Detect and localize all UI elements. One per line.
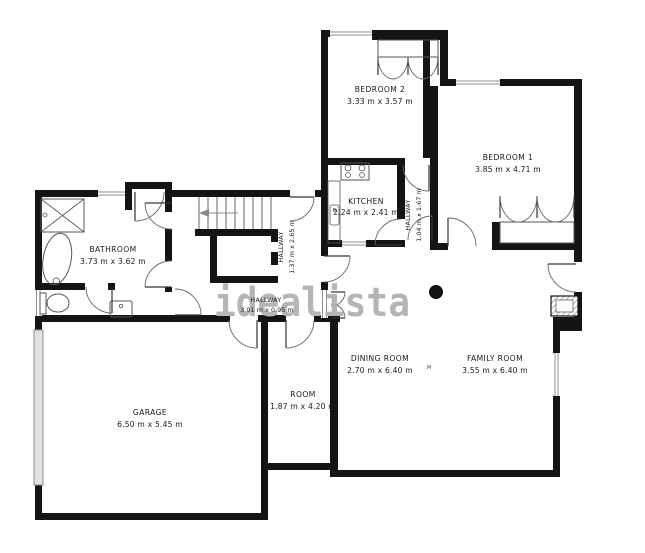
door-bathroom-b — [145, 261, 171, 287]
window-bedroom2-top — [330, 30, 372, 37]
svg-text:3.73 m x 3.62 m: 3.73 m x 3.62 m — [80, 257, 146, 266]
bedroom1-closet — [500, 196, 574, 243]
svg-text:1.37 m x 2.65 m: 1.37 m x 2.65 m — [289, 220, 296, 274]
label-bedroom2: BEDROOM 2 3.33 m x 3.57 m — [347, 85, 413, 106]
stair-direction-arrow-icon — [199, 209, 209, 217]
bathroom-sink-icon — [110, 301, 132, 317]
svg-text:FAMILY ROOM: FAMILY ROOM — [467, 354, 523, 363]
svg-text:2.70 m x 6.40 m: 2.70 m x 6.40 m — [347, 366, 413, 375]
svg-text:2.24 m x 2.41 m: 2.24 m x 2.41 m — [333, 208, 399, 217]
door-hallway-bathroom — [175, 289, 201, 315]
svg-text:DINING ROOM: DINING ROOM — [351, 354, 409, 363]
label-kitchen: KITCHEN 2.24 m x 2.41 m — [333, 197, 399, 217]
walls — [35, 30, 582, 520]
svg-text:HALLWAY: HALLWAY — [278, 231, 285, 262]
svg-text:BEDROOM 2: BEDROOM 2 — [355, 85, 405, 94]
svg-text:1.04 m x 1.67 m: 1.04 m x 1.67 m — [416, 188, 423, 242]
svg-text:1.87 m x 4.20 m: 1.87 m x 4.20 m — [270, 402, 336, 411]
door-front-entry — [290, 197, 314, 221]
label-dining-room: DINING ROOM 2.70 m x 6.40 m — [347, 354, 413, 375]
svg-text:3.01 m x 0.95 m: 3.01 m x 0.95 m — [240, 307, 294, 314]
room-labels: BEDROOM 2 3.33 m x 3.57 m BEDROOM 1 3.85… — [80, 85, 541, 429]
door-hallway-small-top — [403, 165, 429, 191]
door-toilet — [86, 287, 112, 313]
svg-text:HALLWAY: HALLWAY — [250, 297, 281, 304]
window-family-right — [553, 353, 560, 396]
door-bathroom-entry — [135, 192, 164, 221]
label-room: ROOM 1.87 m x 4.20 m — [270, 390, 336, 411]
toilet-icon — [40, 293, 69, 314]
svg-text:KITCHEN: KITCHEN — [348, 197, 384, 206]
divider-marker: M — [427, 365, 432, 371]
label-bedroom1: BEDROOM 1 3.85 m x 4.71 m — [475, 153, 541, 174]
label-hallway-vertical: HALLWAY 1.37 m x 2.65 m — [278, 220, 296, 274]
staircase — [199, 197, 271, 229]
door-hallway-dining — [324, 256, 350, 282]
bathtub-icon — [39, 231, 76, 287]
svg-text:3.55 m x 6.40 m: 3.55 m x 6.40 m — [462, 366, 528, 375]
fireplace-icon — [551, 296, 578, 316]
door-family-room — [548, 264, 576, 292]
column-marker — [429, 285, 443, 299]
label-family-room: FAMILY ROOM 3.55 m x 6.40 m — [462, 354, 528, 375]
window-bathroom-top — [98, 190, 125, 197]
window-kitchen-hatch — [342, 240, 366, 247]
svg-text:3.85 m x 4.71 m: 3.85 m x 4.71 m — [475, 165, 541, 174]
shower-icon — [41, 199, 84, 232]
svg-text:ROOM: ROOM — [290, 390, 315, 399]
stove-icon — [341, 163, 369, 180]
window-toilet-left — [35, 290, 42, 316]
svg-text:3.33 m x 3.57 m: 3.33 m x 3.57 m — [347, 97, 413, 106]
garage-door — [34, 330, 43, 485]
svg-text:BATHROOM: BATHROOM — [89, 245, 136, 254]
window-bedroom1-top — [456, 79, 500, 86]
door-bedroom1 — [448, 218, 476, 246]
floor-plan-svg: idealista BEDROOM 2 3.33 m x 3.57 m BEDR… — [0, 0, 645, 553]
svg-text:6.50 m x 5.45 m: 6.50 m x 5.45 m — [117, 420, 183, 429]
svg-text:BEDROOM 1: BEDROOM 1 — [483, 153, 533, 162]
svg-text:GARAGE: GARAGE — [133, 408, 167, 417]
floor-plan: idealista BEDROOM 2 3.33 m x 3.57 m BEDR… — [0, 0, 645, 553]
idealista-watermark: idealista — [214, 280, 410, 326]
label-garage: GARAGE 6.50 m x 5.45 m — [117, 408, 183, 429]
label-bathroom: BATHROOM 3.73 m x 3.62 m — [80, 245, 146, 266]
svg-text:HALLWAY: HALLWAY — [405, 199, 412, 230]
label-hallway-small: HALLWAY 1.04 m x 1.67 m — [405, 188, 423, 242]
